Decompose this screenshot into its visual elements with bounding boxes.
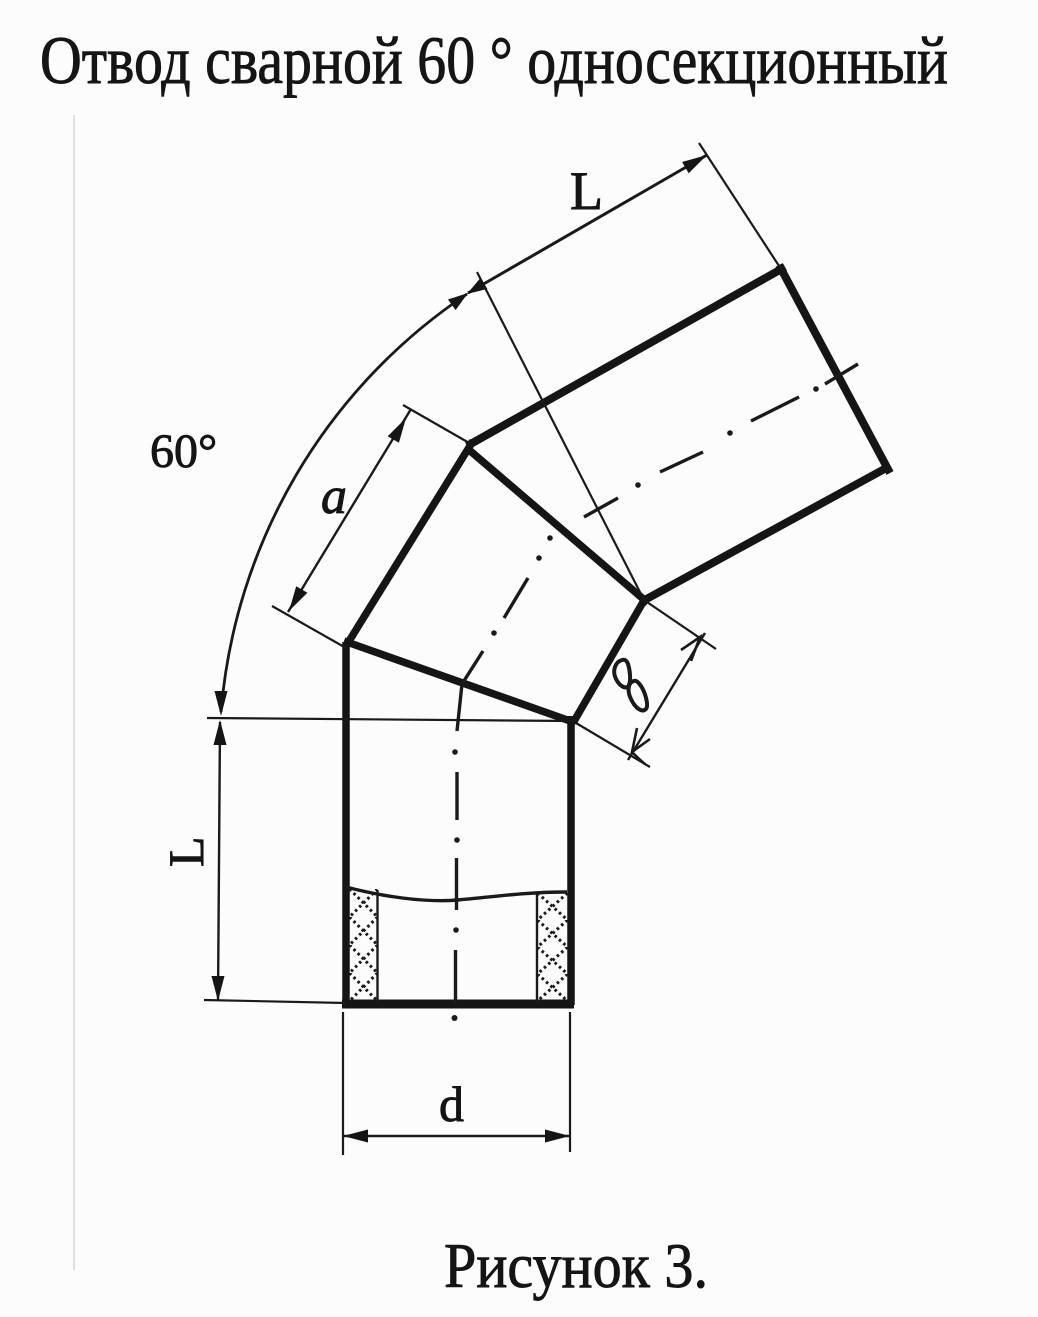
- svg-text:d: d: [439, 1076, 464, 1132]
- svg-text:Отвод сварной 60 ° односекцион: Отвод сварной 60 ° односекционный: [40, 22, 948, 98]
- svg-text:L: L: [158, 836, 214, 867]
- svg-text:Рисунок 3.: Рисунок 3.: [444, 1230, 708, 1301]
- svg-text:a: a: [321, 468, 347, 525]
- svg-text:60°: 60°: [150, 425, 217, 478]
- svg-text:L: L: [570, 161, 603, 221]
